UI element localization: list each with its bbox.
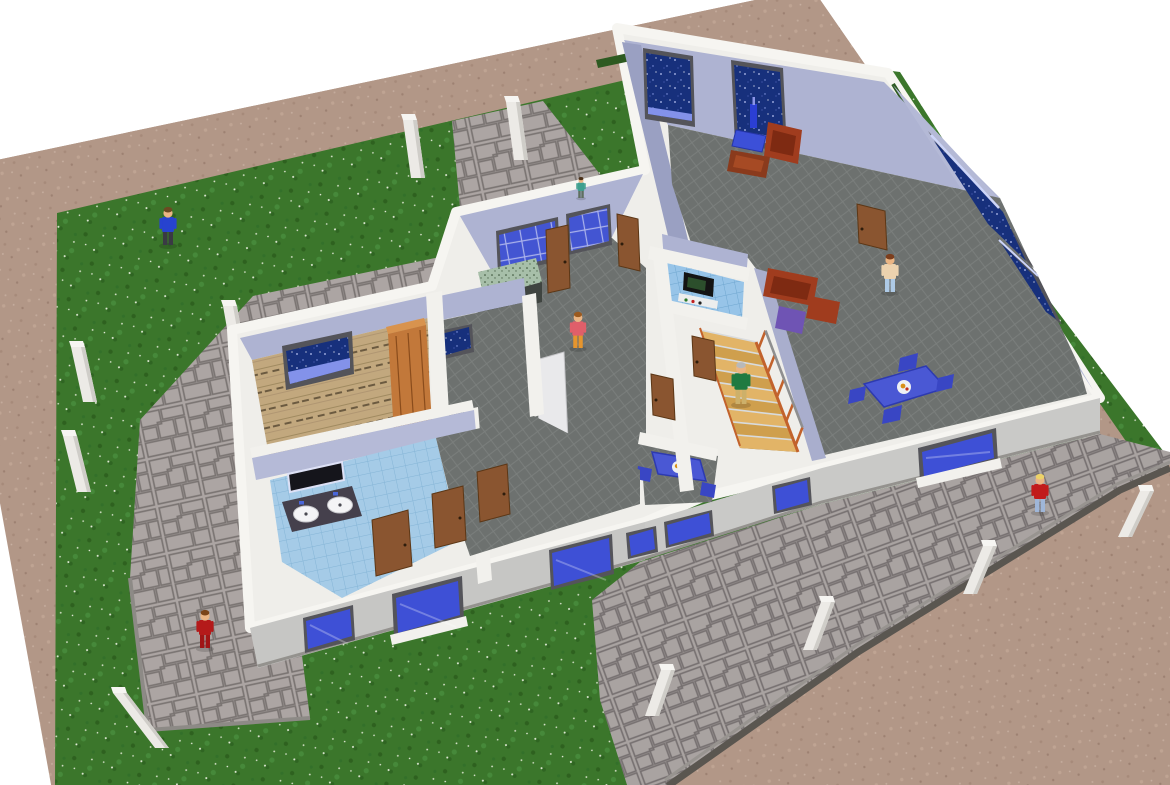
door-living — [857, 204, 887, 250]
living-window-north-1 — [643, 48, 695, 127]
sink-1-drain — [304, 512, 307, 515]
shelf-bottle-black — [698, 301, 701, 304]
tap-2 — [333, 492, 338, 496]
door-kitchen — [546, 225, 570, 293]
sink-2-drain — [338, 503, 341, 506]
3d-view-canvas[interactable] — [0, 0, 1170, 785]
door-entrance — [617, 214, 640, 271]
blue-bottle — [750, 104, 757, 128]
blue-bottle-neck — [753, 97, 756, 105]
shelf-bottle-green — [684, 298, 687, 301]
door-bathroom — [372, 510, 412, 576]
door-hall-2 — [651, 374, 675, 420]
door-hall-1 — [692, 336, 716, 381]
tap-1 — [299, 501, 304, 505]
house-plan-render — [0, 0, 1170, 785]
shelf-bottle-red — [691, 300, 694, 303]
